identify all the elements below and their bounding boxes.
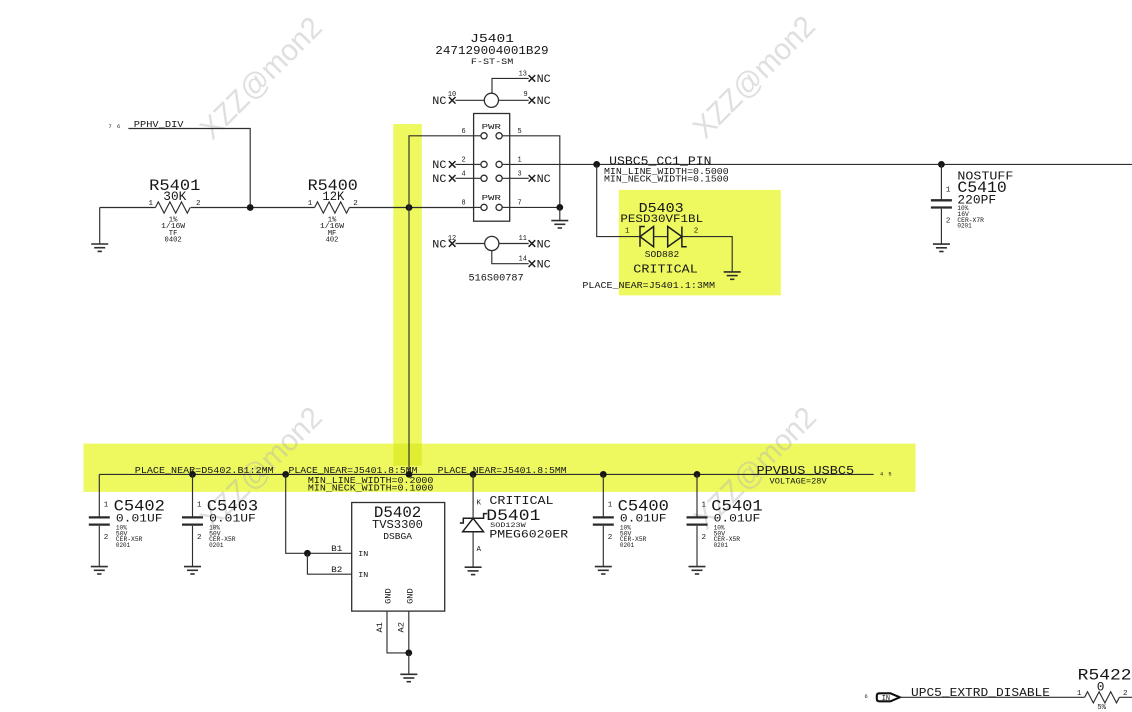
- svg-text:MIN_NECK_WIDTH=0.1000: MIN_NECK_WIDTH=0.1000: [308, 482, 434, 493]
- svg-text:4: 4: [462, 171, 466, 179]
- svg-text:8: 8: [462, 200, 466, 208]
- svg-text:0201: 0201: [957, 223, 971, 230]
- svg-text:NC: NC: [432, 174, 446, 186]
- svg-text:5%: 5%: [1097, 704, 1106, 712]
- svg-text:13: 13: [519, 70, 527, 78]
- svg-text:12K: 12K: [322, 189, 344, 204]
- svg-text:NC: NC: [432, 239, 446, 251]
- svg-text:6: 6: [865, 694, 868, 700]
- svg-text:1: 1: [197, 501, 202, 509]
- svg-text:0: 0: [1097, 680, 1105, 695]
- svg-text:0201: 0201: [714, 542, 728, 549]
- svg-text:2: 2: [608, 534, 613, 542]
- svg-text:402: 402: [326, 237, 339, 245]
- svg-text:A: A: [477, 546, 482, 554]
- svg-text:1: 1: [946, 187, 951, 195]
- svg-text:DSBGA: DSBGA: [383, 532, 412, 542]
- svg-text:2: 2: [353, 200, 358, 208]
- svg-text:9: 9: [524, 91, 528, 99]
- svg-text:NC: NC: [432, 96, 446, 108]
- svg-text:2: 2: [946, 218, 951, 226]
- svg-text:A2: A2: [397, 622, 407, 632]
- svg-text:PPHV_DIV: PPHV_DIV: [134, 119, 184, 130]
- svg-text:1: 1: [149, 200, 154, 208]
- svg-text:247129004001B29: 247129004001B29: [435, 44, 548, 58]
- svg-text:PLACE_NEAR=D5402.B1:2MM: PLACE_NEAR=D5402.B1:2MM: [135, 465, 274, 476]
- svg-text:2: 2: [462, 157, 466, 165]
- svg-text:30K: 30K: [163, 189, 186, 204]
- svg-text:2: 2: [694, 227, 699, 235]
- svg-text:UPC5_EXTRD_DISABLE: UPC5_EXTRD_DISABLE: [911, 686, 1050, 700]
- svg-text:NC: NC: [537, 96, 551, 108]
- svg-text:NC: NC: [537, 239, 551, 251]
- svg-text:NC: NC: [432, 160, 446, 172]
- svg-text:PMEG6020ER: PMEG6020ER: [489, 530, 568, 542]
- svg-text:2: 2: [197, 534, 202, 542]
- svg-text:K: K: [477, 500, 482, 508]
- svg-text:4: 4: [880, 471, 883, 477]
- svg-text:7: 7: [518, 200, 522, 208]
- svg-text:B2: B2: [331, 565, 342, 575]
- svg-text:2: 2: [104, 534, 109, 542]
- svg-text:12: 12: [448, 235, 456, 243]
- svg-text:2: 2: [1123, 690, 1128, 698]
- svg-text:PLACE_NEAR=J5401.8:5MM: PLACE_NEAR=J5401.8:5MM: [438, 465, 567, 476]
- svg-text:PESD30VF1BL: PESD30VF1BL: [620, 214, 703, 226]
- svg-text:0.01UF: 0.01UF: [620, 513, 667, 525]
- svg-text:0402: 0402: [165, 237, 182, 245]
- svg-text:IN: IN: [358, 551, 368, 559]
- svg-text:R5422: R5422: [1078, 667, 1132, 685]
- svg-text:IN: IN: [358, 572, 368, 580]
- svg-text:1: 1: [104, 501, 109, 509]
- svg-text:14: 14: [519, 255, 527, 263]
- svg-text:0201: 0201: [116, 542, 130, 549]
- svg-text:1: 1: [1077, 690, 1082, 698]
- svg-text:7: 7: [109, 124, 112, 130]
- svg-text:PWR: PWR: [482, 124, 502, 132]
- svg-text:SOD123W: SOD123W: [490, 522, 526, 529]
- svg-text:1: 1: [308, 200, 313, 208]
- svg-text:0201: 0201: [209, 542, 223, 549]
- svg-text:GND: GND: [384, 588, 394, 604]
- svg-text:CRITICAL: CRITICAL: [633, 262, 698, 276]
- svg-text:GND: GND: [405, 588, 415, 604]
- svg-text:1: 1: [625, 227, 630, 235]
- svg-text:VOLTAGE=28V: VOLTAGE=28V: [770, 477, 828, 487]
- svg-text:MIN_NECK_WIDTH=0.1500: MIN_NECK_WIDTH=0.1500: [604, 174, 729, 185]
- svg-text:516S00787: 516S00787: [469, 272, 524, 283]
- svg-text:NC: NC: [537, 174, 551, 186]
- svg-text:PWR: PWR: [482, 195, 502, 203]
- svg-text:1: 1: [608, 501, 613, 509]
- svg-text:PLACE_NEAR=J5401.1:3MM: PLACE_NEAR=J5401.1:3MM: [582, 280, 715, 291]
- svg-text:TVS3300: TVS3300: [372, 518, 423, 532]
- svg-text:1: 1: [702, 501, 707, 509]
- svg-text:NC: NC: [537, 74, 551, 86]
- svg-text:0.01UF: 0.01UF: [714, 513, 761, 525]
- svg-text:F-ST-SM: F-ST-SM: [471, 57, 513, 67]
- svg-text:CRITICAL: CRITICAL: [489, 494, 553, 508]
- svg-text:NC: NC: [537, 260, 551, 272]
- svg-text:6: 6: [462, 128, 466, 136]
- svg-text:5: 5: [518, 128, 522, 136]
- svg-text:11: 11: [519, 235, 527, 243]
- svg-text:B1: B1: [331, 544, 342, 554]
- svg-text:0.01UF: 0.01UF: [209, 513, 256, 525]
- svg-text:1: 1: [518, 157, 522, 165]
- svg-text:10: 10: [448, 91, 456, 99]
- svg-text:0.01UF: 0.01UF: [116, 513, 163, 525]
- svg-text:5: 5: [888, 471, 891, 477]
- svg-text:2: 2: [702, 534, 707, 542]
- svg-text:SOD882: SOD882: [645, 250, 679, 260]
- svg-text:3: 3: [518, 171, 522, 179]
- svg-text:IN: IN: [882, 695, 890, 703]
- svg-text:0201: 0201: [620, 542, 634, 549]
- svg-text:6: 6: [117, 124, 120, 130]
- svg-text:A1: A1: [375, 622, 385, 632]
- svg-text:2: 2: [196, 200, 201, 208]
